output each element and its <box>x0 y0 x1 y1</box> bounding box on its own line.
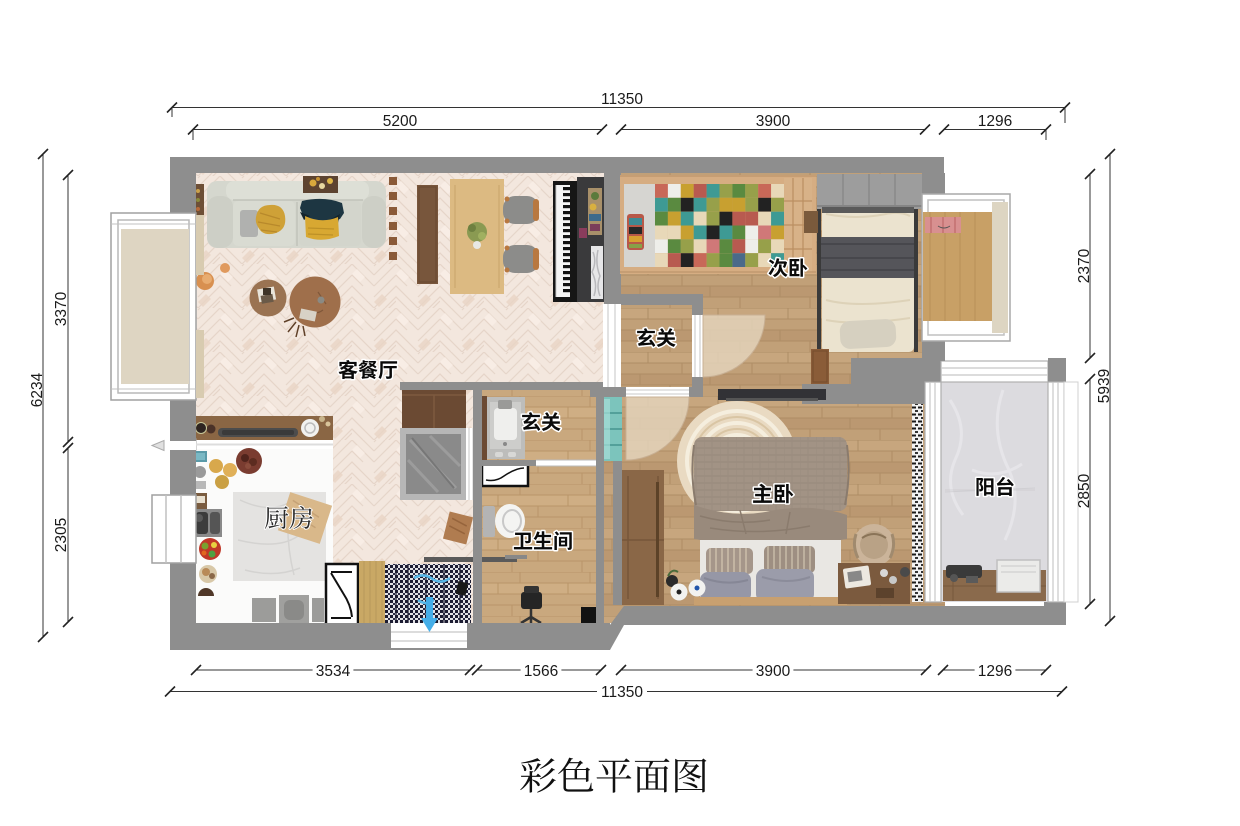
svg-text:3370: 3370 <box>53 291 70 326</box>
svg-text:1566: 1566 <box>524 663 558 680</box>
svg-text:2850: 2850 <box>1076 473 1093 508</box>
svg-text:6234: 6234 <box>29 372 46 407</box>
svg-text:1296: 1296 <box>978 113 1012 130</box>
svg-text:2370: 2370 <box>1076 248 1093 283</box>
svg-text:2305: 2305 <box>53 518 70 552</box>
svg-text:5939: 5939 <box>1096 369 1113 403</box>
svg-text:11350: 11350 <box>601 684 643 701</box>
svg-text:3900: 3900 <box>756 663 791 680</box>
svg-text:11350: 11350 <box>601 91 643 108</box>
svg-text:1296: 1296 <box>978 663 1012 680</box>
svg-text:3534: 3534 <box>316 663 351 680</box>
svg-text:5200: 5200 <box>383 113 418 130</box>
svg-text:3900: 3900 <box>756 113 791 130</box>
